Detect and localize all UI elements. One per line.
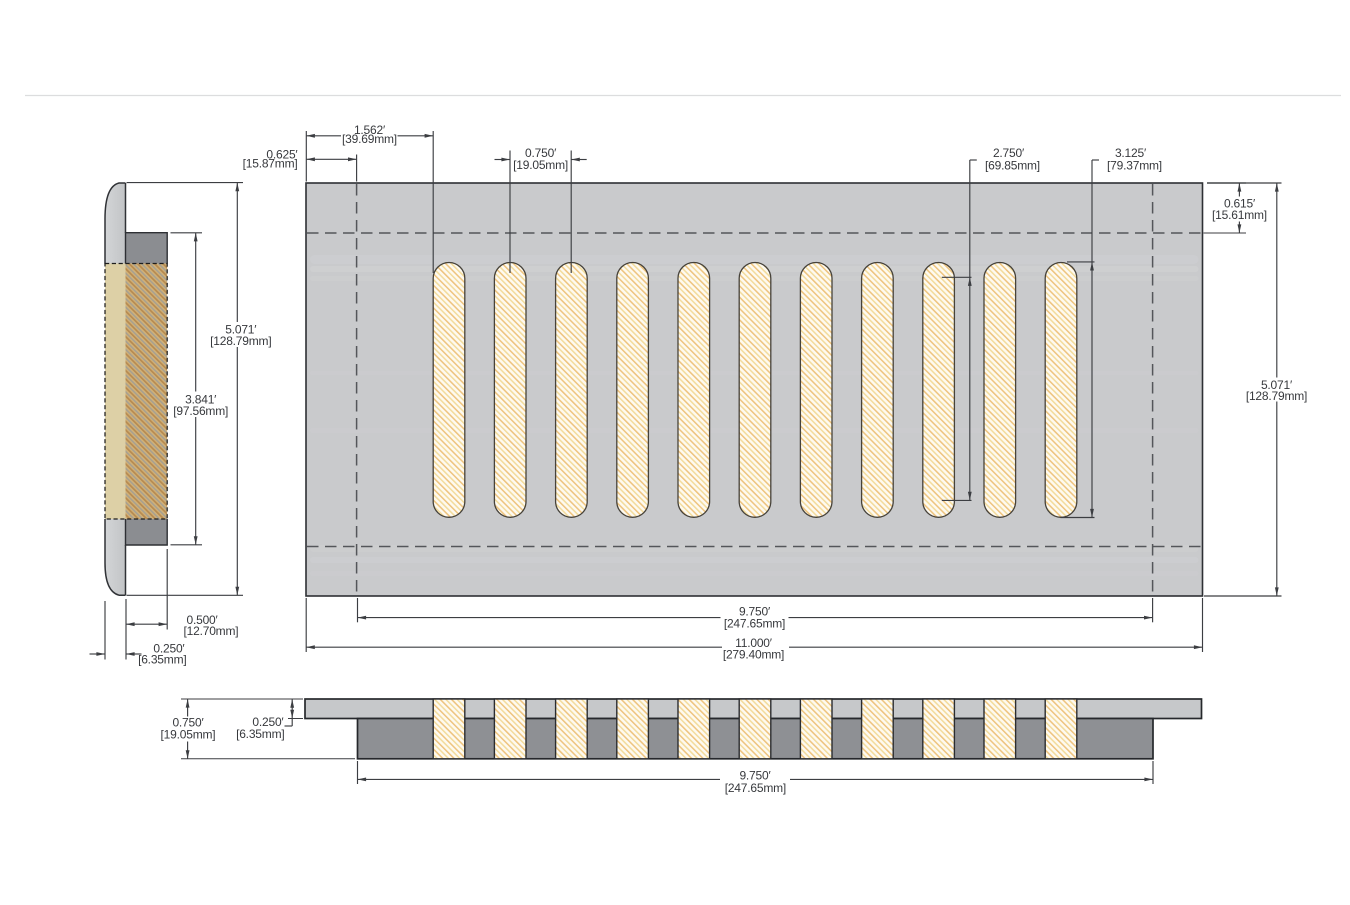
svg-text:[279.40mm]: [279.40mm] bbox=[723, 647, 784, 661]
svg-text:[15.87mm]: [15.87mm] bbox=[243, 157, 298, 171]
svg-text:[247.65mm]: [247.65mm] bbox=[724, 617, 785, 631]
svg-text:[19.05mm]: [19.05mm] bbox=[513, 158, 568, 172]
svg-text:[247.65mm]: [247.65mm] bbox=[725, 781, 786, 795]
svg-text:[79.37mm]: [79.37mm] bbox=[1107, 159, 1162, 173]
svg-text:[6.35mm]: [6.35mm] bbox=[236, 727, 284, 741]
svg-text:[128.79mm]: [128.79mm] bbox=[210, 334, 271, 348]
svg-text:[97.56mm]: [97.56mm] bbox=[173, 404, 228, 418]
svg-text:[128.79mm]: [128.79mm] bbox=[1246, 389, 1307, 403]
svg-text:[39.69mm]: [39.69mm] bbox=[342, 132, 397, 146]
svg-text:[15.61mm]: [15.61mm] bbox=[1212, 208, 1267, 222]
svg-text:[6.35mm]: [6.35mm] bbox=[138, 652, 186, 666]
svg-text:[12.70mm]: [12.70mm] bbox=[184, 624, 239, 638]
svg-text:[69.85mm]: [69.85mm] bbox=[985, 159, 1040, 173]
svg-text:[19.05mm]: [19.05mm] bbox=[161, 727, 216, 741]
